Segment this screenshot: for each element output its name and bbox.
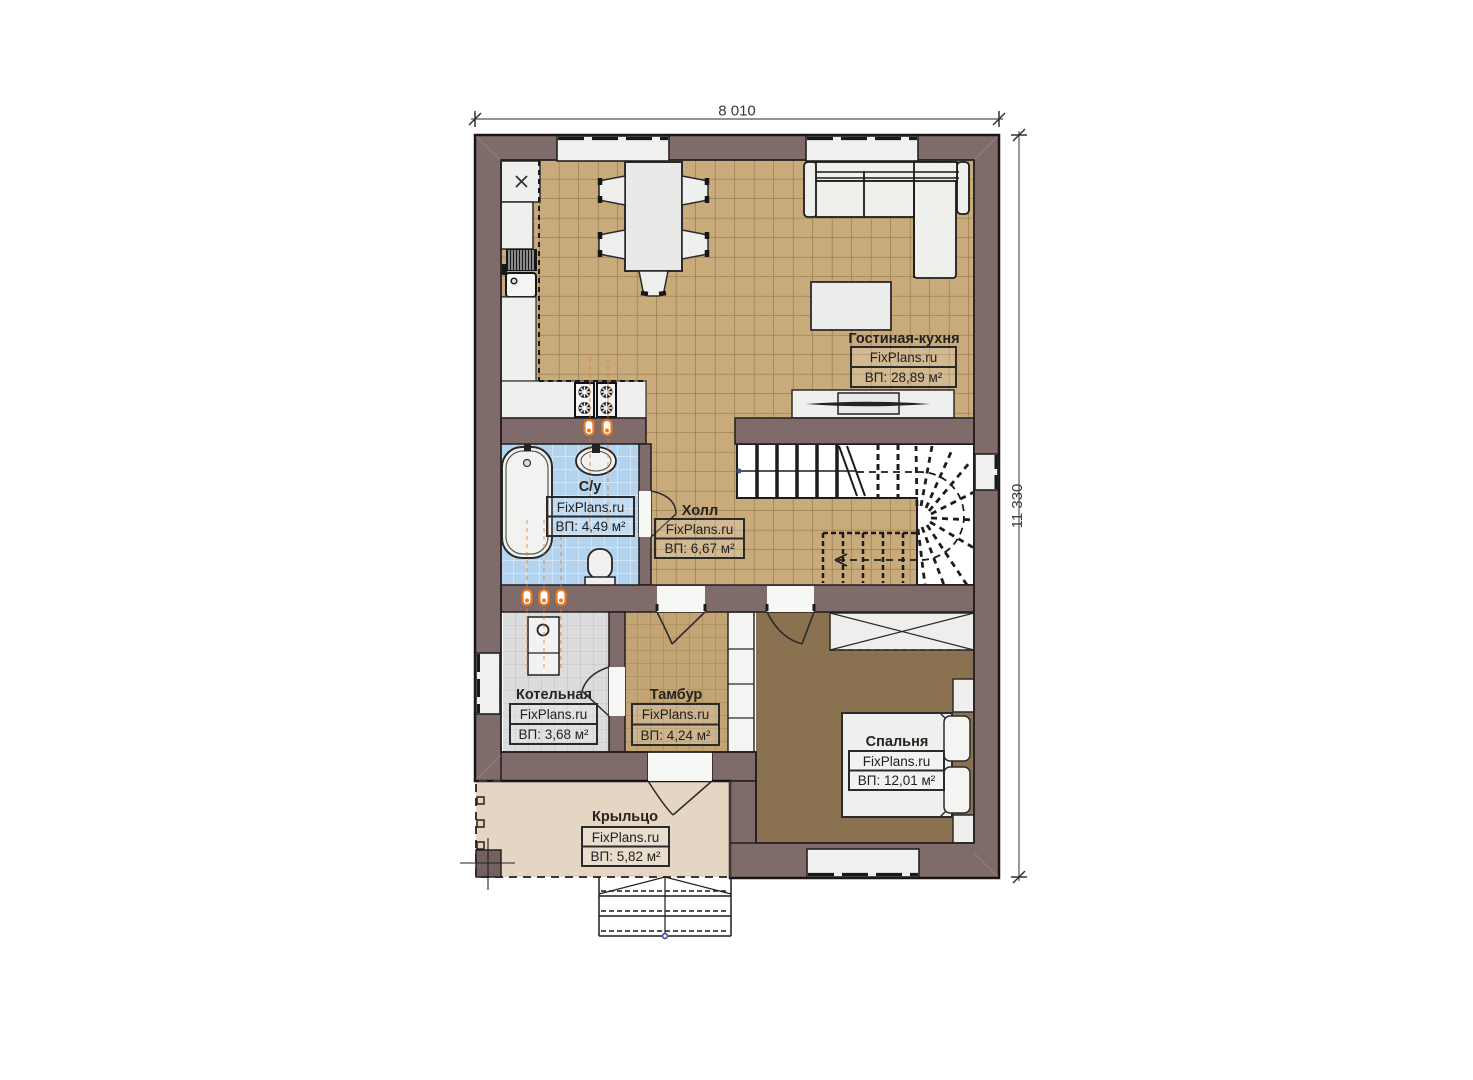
svg-text:8 010: 8 010 <box>718 103 756 120</box>
svg-text:Котельная: Котельная <box>516 687 592 703</box>
svg-text:FixPlans.ru: FixPlans.ru <box>592 830 660 845</box>
svg-text:Тамбур: Тамбур <box>650 687 703 703</box>
svg-text:С/у: С/у <box>579 479 602 495</box>
svg-text:FixPlans.ru: FixPlans.ru <box>666 522 734 537</box>
svg-text:Крыльцо: Крыльцо <box>592 809 658 825</box>
svg-text:ВП: 12,01 м²: ВП: 12,01 м² <box>858 773 936 788</box>
svg-text:FixPlans.ru: FixPlans.ru <box>863 754 931 769</box>
svg-text:ВП: 3,68 м²: ВП: 3,68 м² <box>518 727 589 742</box>
svg-text:ВП: 4,24 м²: ВП: 4,24 м² <box>640 728 711 743</box>
svg-text:ВП: 28,89 м²: ВП: 28,89 м² <box>865 370 943 385</box>
svg-text:Холл: Холл <box>682 503 718 519</box>
svg-text:FixPlans.ru: FixPlans.ru <box>557 500 625 515</box>
svg-text:FixPlans.ru: FixPlans.ru <box>642 707 710 722</box>
svg-text:Спальня: Спальня <box>866 734 929 750</box>
svg-text:Гостиная-кухня: Гостиная-кухня <box>848 331 959 347</box>
svg-text:ВП: 4,49 м²: ВП: 4,49 м² <box>555 519 626 534</box>
svg-text:FixPlans.ru: FixPlans.ru <box>870 350 938 365</box>
svg-text:FixPlans.ru: FixPlans.ru <box>520 707 588 722</box>
svg-text:11 330: 11 330 <box>1009 484 1026 529</box>
svg-text:ВП: 5,82 м²: ВП: 5,82 м² <box>590 849 661 864</box>
svg-text:ВП: 6,67 м²: ВП: 6,67 м² <box>664 541 735 556</box>
